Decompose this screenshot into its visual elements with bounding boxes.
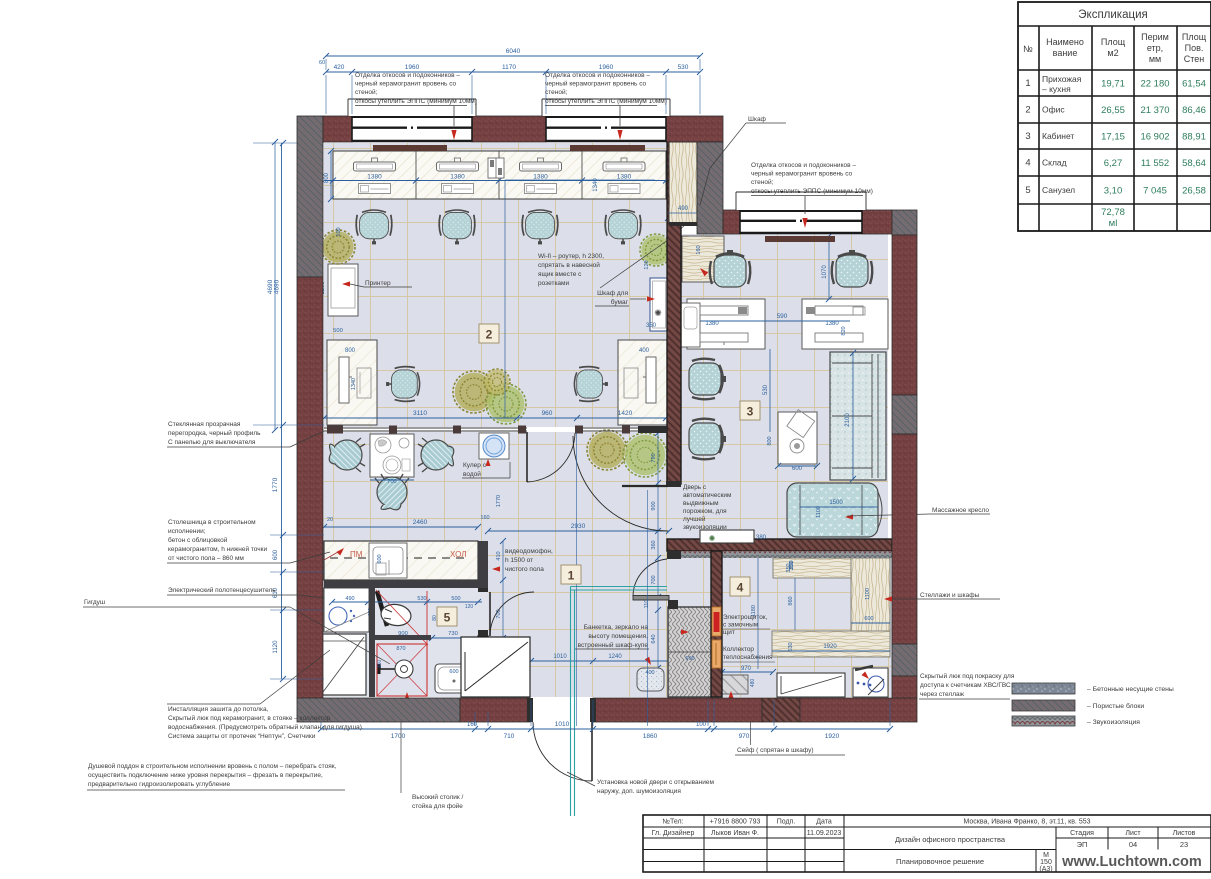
svg-text:26,55: 26,55	[1101, 105, 1125, 116]
svg-text:820: 820	[841, 326, 847, 335]
svg-text:розетками: розетками	[538, 280, 570, 287]
svg-text:100: 100	[336, 227, 342, 236]
svg-text:Отделка откосов и подоконников: Отделка откосов и подоконников –	[751, 162, 856, 169]
svg-text:3: 3	[747, 405, 754, 419]
svg-text:1500: 1500	[829, 500, 843, 506]
svg-text:870: 870	[396, 646, 405, 652]
svg-text:1380: 1380	[533, 174, 548, 181]
svg-text:Установка новой двери с открыв: Установка новой двери с открыванием	[597, 778, 714, 786]
svg-text:3110: 3110	[413, 410, 427, 417]
svg-text:Листов: Листов	[1173, 830, 1196, 837]
svg-text:Пов.: Пов.	[1185, 43, 1204, 53]
svg-text:стеной;: стеной;	[751, 178, 774, 186]
svg-text:04: 04	[1129, 840, 1137, 849]
svg-text:600: 600	[792, 466, 803, 472]
svg-text:Кабинет: Кабинет	[1042, 131, 1074, 141]
svg-text:60: 60	[319, 60, 325, 66]
svg-text:6,27: 6,27	[1104, 158, 1123, 169]
svg-text:19,71: 19,71	[1101, 79, 1125, 90]
svg-text:доступа к счетчикам ХВС/ГВС: доступа к счетчикам ХВС/ГВС	[920, 682, 1011, 689]
svg-text:730: 730	[448, 631, 458, 637]
svg-text:3: 3	[1025, 131, 1030, 142]
svg-text:1420: 1420	[618, 410, 633, 417]
svg-text:Наимено: Наимено	[1046, 37, 1084, 47]
svg-text:800: 800	[767, 436, 773, 445]
svg-text:лучшей: лучшей	[683, 515, 706, 523]
svg-text:1960: 1960	[599, 64, 614, 71]
svg-text:1100: 1100	[816, 506, 822, 518]
svg-text:спрятать в навесной: спрятать в навесной	[538, 261, 600, 269]
svg-text:86,46: 86,46	[1182, 105, 1206, 116]
svg-text:17,15: 17,15	[1101, 132, 1125, 143]
svg-text:1920: 1920	[823, 644, 837, 650]
svg-text:61,54: 61,54	[1182, 79, 1206, 90]
svg-text:бетон с облицовкой: бетон с облицовкой	[168, 536, 228, 544]
svg-text:теплоснабжения: теплоснабжения	[723, 653, 773, 661]
svg-text:640: 640	[651, 634, 657, 643]
svg-text:970: 970	[739, 733, 750, 740]
svg-text:490: 490	[345, 596, 354, 602]
svg-text:2: 2	[1025, 105, 1030, 116]
svg-text:Москва, Ивана Франко, 8, эт.11: Москва, Ивана Франко, 8, эт.11, кв. 553	[963, 819, 1090, 826]
svg-text:№Тел:: №Тел:	[662, 819, 683, 826]
svg-text:✺: ✺	[654, 308, 662, 318]
svg-text:Лыков Иван Ф.: Лыков Иван Ф.	[711, 830, 759, 837]
svg-text:1770: 1770	[272, 477, 279, 492]
svg-text:2100: 2100	[845, 413, 851, 427]
svg-text:Высокий столик /: Высокий столик /	[412, 793, 464, 801]
svg-text:600: 600	[273, 549, 279, 560]
svg-text:Дата: Дата	[816, 819, 832, 826]
svg-text:800: 800	[324, 172, 330, 183]
svg-text:1380: 1380	[450, 174, 465, 181]
svg-text:www.Luchtown.com: www.Luchtown.com	[1061, 854, 1202, 870]
svg-text:Электрический полотенцесушител: Электрический полотенцесушитель	[168, 586, 276, 594]
svg-text:Дизайн офисного пространства: Дизайн офисного пространства	[895, 835, 1006, 844]
svg-text:630: 630	[788, 642, 794, 651]
svg-text:480: 480	[750, 679, 756, 688]
svg-text:осуществить подключение ниже: осуществить подключение ниже уровня пере…	[88, 772, 323, 779]
svg-text:350: 350	[789, 561, 795, 570]
svg-text:410: 410	[496, 551, 502, 560]
svg-text:120: 120	[644, 260, 650, 269]
svg-text:710: 710	[504, 733, 515, 740]
svg-text:чистого пола: чистого пола	[505, 566, 544, 573]
svg-text:Стеклянная прозрачная: Стеклянная прозрачная	[168, 421, 241, 428]
svg-text:1010: 1010	[555, 721, 570, 728]
svg-text:етр,: етр,	[1147, 43, 1163, 53]
svg-text:высоту помещения,: высоту помещения,	[588, 633, 648, 640]
svg-text:500: 500	[451, 596, 460, 602]
svg-text:1: 1	[1025, 78, 1030, 89]
svg-text:860: 860	[788, 596, 794, 605]
svg-text:Подп.: Подп.	[777, 819, 796, 826]
svg-text:Банкетка, зеркало на: Банкетка, зеркало на	[584, 624, 649, 631]
svg-text:Стен: Стен	[1184, 54, 1205, 64]
svg-text:1380: 1380	[367, 174, 382, 181]
svg-text:26,58: 26,58	[1182, 186, 1206, 197]
svg-text:перегородка, черный профиль: перегородка, черный профиль	[168, 429, 261, 437]
svg-text:исполнении;: исполнении;	[168, 528, 206, 535]
svg-text:Электрощиток,: Электрощиток,	[723, 614, 768, 621]
svg-text:Столешница в строительном: Столешница в строительном	[168, 519, 256, 526]
svg-text:1920: 1920	[825, 733, 840, 740]
svg-text:Сейф ( спрятан в шкафу): Сейф ( спрятан в шкафу)	[737, 746, 814, 754]
svg-text:58,64: 58,64	[1182, 158, 1206, 169]
svg-text:1: 1	[568, 569, 575, 583]
svg-text:1770: 1770	[496, 495, 502, 507]
svg-text:стойка для фойе: стойка для фойе	[412, 802, 463, 810]
svg-text:откосы утеплить ЭППС (минимум: откосы утеплить ЭППС (минимум 10мм)	[355, 98, 477, 105]
svg-text:✺: ✺	[709, 534, 716, 543]
svg-text:Скрытый люк под покраску для: Скрытый люк под покраску для	[920, 672, 1015, 680]
svg-text:160: 160	[696, 245, 702, 254]
svg-text:530: 530	[763, 384, 769, 395]
svg-text:500: 500	[333, 328, 343, 334]
svg-text:через стеллаж: через стеллаж	[920, 691, 965, 698]
svg-text:1120: 1120	[273, 640, 279, 654]
svg-text:Гл. Дизайнер: Гл. Дизайнер	[652, 829, 695, 837]
svg-text:от чистого пола – 860 мм: от чистого пола – 860 мм	[168, 555, 244, 562]
svg-text:– Пористые блоки: – Пористые блоки	[1087, 702, 1144, 710]
svg-text:видеодомофон,: видеодомофон,	[505, 548, 553, 555]
svg-text:Площ: Площ	[1101, 37, 1126, 47]
svg-text:стеной;: стеной;	[545, 88, 568, 96]
svg-text:110: 110	[644, 600, 650, 609]
svg-text:Экспликация: Экспликация	[1078, 9, 1147, 21]
svg-text:наружу, доп. шумоизоляция: наружу, доп. шумоизоляция	[597, 788, 681, 795]
svg-text:Wi-fi – роутер, h 2300,: Wi-fi – роутер, h 2300,	[538, 253, 604, 260]
svg-text:с замочным: с замочным	[723, 622, 758, 629]
svg-text:700: 700	[651, 575, 657, 584]
svg-text:Стадия: Стадия	[1070, 830, 1094, 837]
svg-text:5: 5	[444, 611, 451, 625]
svg-text:1380: 1380	[825, 321, 839, 327]
svg-text:380: 380	[756, 535, 767, 541]
svg-text:11.09.2023: 11.09.2023	[807, 830, 842, 837]
svg-text:400: 400	[639, 348, 650, 354]
svg-text:Стеллажи и шкафы: Стеллажи и шкафы	[920, 592, 980, 599]
svg-text:1170: 1170	[502, 64, 516, 71]
svg-text:22 180: 22 180	[1140, 79, 1169, 90]
svg-text:Планировочное решение: Планировочное решение	[896, 857, 984, 866]
svg-text:керамогранитом, h нижней точки: керамогранитом, h нижней точки	[168, 545, 268, 553]
svg-text:Кулер с: Кулер с	[463, 462, 487, 469]
svg-text:1180: 1180	[751, 605, 757, 617]
svg-text:щит: щит	[723, 629, 735, 636]
svg-text:2460: 2460	[413, 519, 428, 526]
svg-text:1700: 1700	[391, 733, 406, 740]
svg-text:970: 970	[741, 666, 752, 672]
svg-text:160: 160	[467, 722, 478, 728]
svg-text:6040: 6040	[506, 48, 521, 55]
svg-text:600: 600	[377, 554, 383, 563]
svg-text:водоснабжения. (Предусмотреть: водоснабжения. (Предусмотреть обратный к…	[168, 723, 364, 731]
svg-text:Перим: Перим	[1141, 32, 1169, 42]
svg-text:С панелью для выключателя: С панелью для выключателя	[168, 439, 256, 446]
svg-text:черный керамогранит вровень со: черный керамогранит вровень со	[545, 80, 647, 88]
svg-text:16 902: 16 902	[1140, 132, 1169, 143]
svg-text:7 045: 7 045	[1143, 186, 1167, 197]
svg-text:160: 160	[377, 660, 383, 669]
svg-text:h 1500 от: h 1500 от	[505, 557, 533, 564]
svg-text:выдвижным: выдвижным	[683, 500, 718, 507]
svg-text:откосы утеплить ЭППС (минимум: откосы утеплить ЭППС (минимум 10мм)	[545, 98, 667, 105]
svg-text:Гигдуш: Гигдуш	[84, 599, 105, 606]
svg-text:Отделка откосов и подоконников: Отделка откосов и подоконников –	[355, 72, 460, 79]
svg-text:М: М	[1043, 852, 1049, 859]
svg-text:(А3): (А3)	[1039, 866, 1052, 873]
svg-text:Отделка откосов и подоконников: Отделка откосов и подоконников –	[545, 72, 650, 79]
svg-text:Коллектор: Коллектор	[723, 646, 754, 653]
svg-text:400: 400	[645, 670, 654, 676]
svg-text:4: 4	[1025, 158, 1030, 169]
svg-text:ЭП: ЭП	[1077, 840, 1088, 849]
svg-text:20: 20	[327, 517, 333, 523]
svg-text:360: 360	[651, 540, 657, 549]
svg-text:Склад: Склад	[1042, 158, 1067, 168]
svg-text:Инсталляция зашита до потолка,: Инсталляция зашита до потолка,	[168, 706, 269, 713]
svg-text:черный керамогранит вровень со: черный керамогранит вровень со	[355, 80, 457, 88]
svg-text:790: 790	[651, 453, 657, 462]
svg-text:160: 160	[480, 515, 489, 521]
svg-text:100: 100	[696, 722, 707, 728]
svg-text:№: №	[1023, 44, 1033, 54]
svg-text:откосы утеплить ЭППС (минимум: откосы утеплить ЭППС (минимум 10мм)	[751, 188, 873, 195]
svg-text:Площ: Площ	[1182, 32, 1207, 42]
svg-text:11 552: 11 552	[1141, 158, 1169, 169]
svg-text:150: 150	[1040, 859, 1052, 866]
svg-text:черный керамогранит вровень со: черный керамогранит вровень со	[751, 170, 853, 178]
svg-text:900: 900	[651, 501, 657, 510]
svg-text:мl: мl	[1109, 218, 1118, 229]
svg-text:5: 5	[1025, 185, 1030, 196]
svg-text:Шкаф для: Шкаф для	[597, 290, 628, 297]
svg-text:420: 420	[334, 64, 345, 71]
svg-text:Офис: Офис	[1042, 105, 1065, 115]
svg-text:1100: 1100	[865, 588, 871, 600]
svg-text:1340: 1340	[351, 378, 357, 390]
svg-text:ХОЛ: ХОЛ	[450, 550, 466, 559]
svg-text:+7916 8800 793: +7916 8800 793	[710, 819, 761, 826]
svg-text:3,10: 3,10	[1104, 186, 1123, 197]
svg-text:600: 600	[864, 616, 873, 622]
svg-text:590: 590	[777, 313, 788, 320]
svg-text:700: 700	[496, 609, 502, 618]
svg-text:2: 2	[486, 328, 493, 342]
svg-text:Массажное кресло: Массажное кресло	[932, 507, 989, 514]
svg-text:2930: 2930	[571, 523, 586, 530]
svg-text:встроенный шкаф-купе: встроенный шкаф-купе	[578, 641, 649, 649]
svg-text:стеной;: стеной;	[355, 88, 378, 96]
svg-text:1240: 1240	[608, 654, 622, 660]
svg-text:1070: 1070	[822, 265, 828, 279]
svg-text:ящик вместе с: ящик вместе с	[538, 271, 582, 278]
svg-text:1860: 1860	[643, 733, 658, 740]
svg-text:490: 490	[678, 206, 689, 212]
svg-text:– Звукоизоляция: – Звукоизоляция	[1087, 719, 1140, 726]
svg-text:4690: 4690	[267, 279, 274, 294]
svg-text:Дверь с: Дверь с	[683, 484, 707, 491]
svg-text:Шкаф: Шкаф	[748, 116, 767, 123]
svg-text:72,78: 72,78	[1101, 207, 1125, 218]
svg-text:мм: мм	[1149, 54, 1161, 64]
svg-text:Санузел: Санузел	[1042, 185, 1075, 195]
svg-text:вание: вание	[1053, 48, 1078, 58]
svg-text:23: 23	[1180, 840, 1188, 849]
svg-text:600: 600	[685, 656, 694, 662]
svg-text:960: 960	[542, 410, 553, 417]
svg-text:350: 350	[646, 323, 657, 329]
svg-text:1010: 1010	[553, 654, 567, 660]
svg-text:Прихожая: Прихожая	[1042, 74, 1082, 84]
svg-text:1380: 1380	[705, 321, 719, 327]
svg-text:530: 530	[417, 596, 426, 602]
svg-text:21 370: 21 370	[1140, 105, 1169, 116]
svg-text:бумаг: бумаг	[611, 298, 629, 306]
svg-text:4690: 4690	[274, 279, 281, 294]
svg-text:1960: 1960	[405, 64, 420, 71]
svg-text:предварительно гидроизолироват: предварительно гидроизолировать углублен…	[88, 780, 230, 788]
svg-text:120: 120	[465, 604, 474, 610]
svg-text:600: 600	[449, 669, 458, 675]
svg-text:Лист: Лист	[1125, 830, 1141, 837]
svg-text:1380: 1380	[617, 174, 632, 181]
svg-text:4: 4	[737, 581, 744, 595]
svg-text:Скрытый люк под керамогранит,: Скрытый люк под керамогранит, в стояке –…	[168, 714, 331, 722]
svg-text:88,91: 88,91	[1182, 132, 1206, 143]
svg-text:– кухня: – кухня	[1042, 84, 1071, 94]
svg-text:– Бетонные несущие стены: – Бетонные несущие стены	[1087, 686, 1174, 693]
svg-text:автоматическим: автоматическим	[683, 492, 731, 499]
svg-text:порожком, для: порожком, для	[683, 508, 727, 515]
svg-text:Принтер: Принтер	[365, 280, 391, 287]
svg-text:Система защиты от протечек “Не: Система защиты от протечек “Нептун”, Сче…	[168, 733, 316, 740]
svg-text:800: 800	[345, 348, 356, 354]
svg-text:530: 530	[678, 64, 689, 71]
svg-text:Душевой поддон в строительном: Душевой поддон в строительном исполнении…	[88, 762, 337, 770]
svg-text:ПМ: ПМ	[350, 550, 363, 559]
svg-text:водой: водой	[463, 470, 481, 478]
svg-text:м2: м2	[1107, 48, 1118, 58]
